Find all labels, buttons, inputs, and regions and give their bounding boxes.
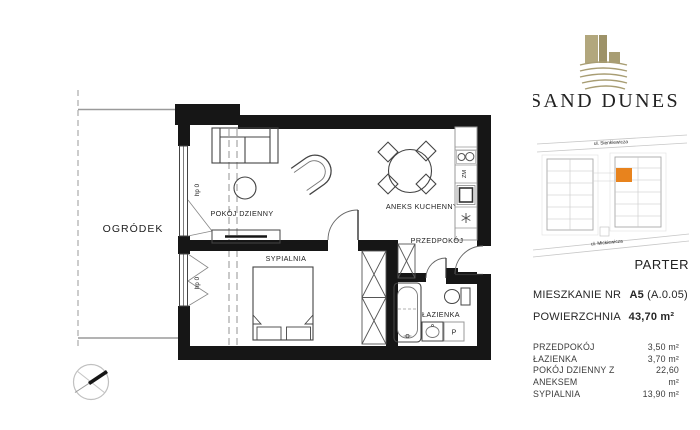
room-area: 22,60 m² (647, 365, 679, 388)
hallway-label: PRZEDPOKÓJ (411, 236, 464, 245)
toilet (445, 288, 471, 305)
armchair (291, 149, 337, 195)
area-line: POWIERZCHNIA 43,70 m² (533, 311, 679, 323)
bedroom-wardrobe (362, 251, 386, 344)
kitchen-counter: ZM (455, 127, 477, 240)
sill-height-label-bedroom: hp 0 (194, 276, 201, 289)
apartment-number-line: MIESZKANIE NR A5 (A.0.05) (533, 289, 679, 301)
dunes-icon (580, 62, 627, 89)
apartment-number: A5 (629, 289, 643, 301)
compass-rose-icon (74, 365, 109, 400)
building-icon (585, 35, 620, 63)
site-plan: ul. Sienkiewicza ul. Mickiewicza (531, 128, 695, 276)
room-list-item: POKÓJ DZIENNY Z ANEKSEM 22,60 m² (533, 365, 679, 388)
sofa (212, 128, 278, 163)
interior-door (328, 210, 358, 240)
hall-wardrobe (398, 244, 415, 278)
room-area: 3,50 m² (648, 342, 679, 354)
dining-table (378, 141, 436, 194)
room-name: SYPIALNIA (533, 389, 580, 401)
brand-name: SAND DUNES (533, 90, 680, 112)
bathroom-door (426, 258, 446, 278)
room-list-item: ŁAZIENKA 3,70 m² (533, 354, 679, 366)
floor-label: PARTER (634, 257, 689, 272)
dishwasher-label: ZM (462, 170, 468, 178)
street-bottom-label: ul. Mickiewicza (591, 238, 624, 247)
building-outline-left (547, 159, 593, 230)
apartment-code: (A.0.05) (647, 289, 688, 301)
bed (253, 267, 313, 340)
room-list-item: SYPIALNIA 13,90 m² (533, 389, 679, 401)
apartment-details: MIESZKANIE NR A5 (A.0.05) POWIERZCHNIA 4… (533, 289, 679, 401)
living-room-label: POKÓJ DZIENNY (210, 209, 273, 218)
area-label: POWIERZCHNIA (533, 311, 620, 323)
room-name: POKÓJ DZIENNY Z ANEKSEM (533, 365, 647, 388)
kitchen-label: ANEKS KUCHENNY (386, 202, 458, 211)
sill-height-label-living: hp 0 (194, 183, 201, 196)
corridor-lines (593, 173, 615, 236)
room-area: 3,70 m² (648, 354, 679, 366)
bathtub (394, 283, 421, 342)
brand-logo: SAND DUNES (533, 14, 693, 118)
highlighted-unit (616, 168, 632, 182)
washing-machine: P (444, 322, 464, 341)
room-area: 13,90 m² (643, 389, 679, 401)
brochure-page: OGRÓDEK (0, 0, 700, 430)
bathroom-label: ŁAZIENKA (422, 310, 460, 319)
room-name: ŁAZIENKA (533, 354, 577, 366)
bedroom-label: SYPIALNIA (266, 254, 307, 263)
building-outline-right (615, 157, 661, 227)
garden-area: OGRÓDEK (78, 90, 180, 346)
garden-label: OGRÓDEK (103, 222, 164, 235)
apartment-label: MIESZKANIE NR (533, 289, 621, 301)
area-value: 43,70 m² (629, 311, 675, 323)
entrance-door (455, 246, 483, 275)
room-list-item: PRZEDPOKÓJ 3,50 m² (533, 342, 679, 354)
washbasin (422, 322, 443, 341)
room-list: PRZEDPOKÓJ 3,50 m² ŁAZIENKA 3,70 m² POKÓ… (533, 342, 679, 401)
room-name: PRZEDPOKÓJ (533, 342, 595, 354)
washing-machine-label: P (452, 330, 457, 337)
floorplan: OGRÓDEK (0, 0, 530, 430)
